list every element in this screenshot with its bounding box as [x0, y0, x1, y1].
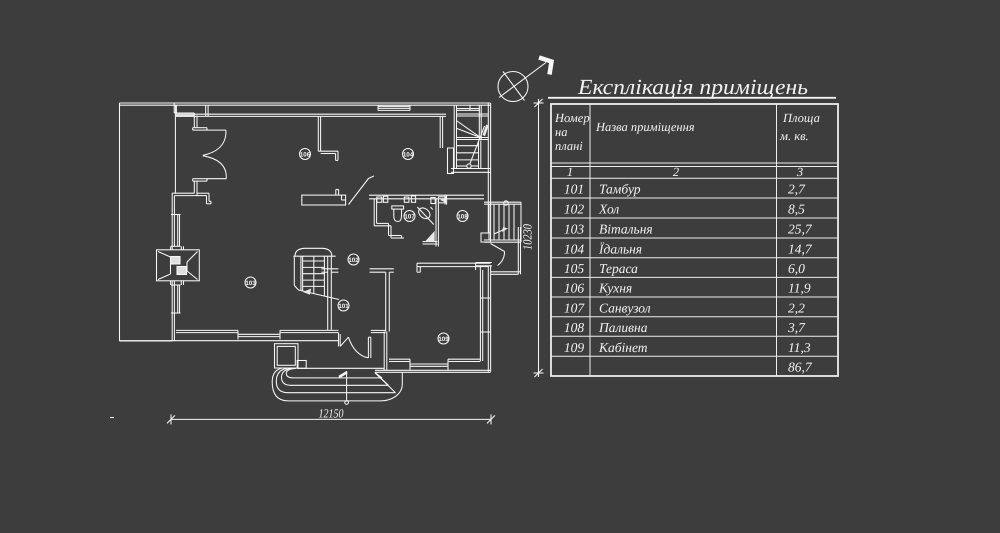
svg-text:106: 106	[564, 281, 585, 296]
svg-text:плані: плані	[555, 139, 583, 153]
svg-text:1: 1	[567, 165, 573, 179]
svg-text:102: 102	[348, 257, 359, 264]
svg-text:на: на	[555, 125, 567, 139]
svg-text:6,0: 6,0	[788, 261, 805, 276]
svg-text:2,7: 2,7	[788, 182, 806, 197]
svg-text:109: 109	[564, 340, 585, 355]
svg-text:105: 105	[564, 261, 585, 276]
svg-text:11,9: 11,9	[788, 281, 811, 296]
svg-text:106: 106	[300, 151, 311, 158]
svg-text:14,7: 14,7	[788, 241, 813, 256]
svg-text:Площа: Площа	[782, 111, 820, 125]
svg-text:м. кв.: м. кв.	[779, 129, 809, 143]
svg-text:Хол: Хол	[598, 202, 619, 217]
svg-text:Експлікація приміщень: Експлікація приміщень	[577, 75, 808, 99]
svg-text:102: 102	[564, 202, 585, 217]
svg-text:Їдальня: Їдальня	[598, 241, 642, 256]
svg-text:107: 107	[564, 300, 586, 315]
svg-text:104: 104	[403, 151, 414, 158]
svg-text:103: 103	[564, 222, 585, 237]
svg-text:103: 103	[245, 280, 256, 287]
svg-text:Кухня: Кухня	[598, 281, 632, 296]
svg-text:86,7: 86,7	[788, 360, 813, 375]
svg-text:Назва приміщення: Назва приміщення	[595, 120, 695, 134]
svg-text:10230: 10230	[521, 223, 535, 250]
svg-text:Санвузол: Санвузол	[599, 300, 651, 315]
svg-text:104: 104	[564, 241, 585, 256]
svg-text:109: 109	[438, 336, 449, 343]
svg-text:101: 101	[338, 303, 349, 310]
svg-text:12150: 12150	[319, 406, 345, 420]
svg-text:25,7: 25,7	[788, 222, 813, 237]
svg-text:Номер: Номер	[554, 111, 590, 125]
svg-text:2: 2	[673, 165, 679, 179]
svg-text:108: 108	[564, 320, 585, 335]
svg-text:101: 101	[564, 182, 584, 197]
svg-text:3: 3	[796, 165, 803, 179]
svg-text:11,3: 11,3	[788, 340, 811, 355]
svg-text:Тераса: Тераса	[599, 261, 638, 276]
svg-text:Кабінет: Кабінет	[598, 340, 648, 355]
svg-text:Вітальня: Вітальня	[599, 222, 653, 237]
svg-text:8,5: 8,5	[788, 202, 805, 217]
svg-text:2,2: 2,2	[788, 300, 805, 315]
svg-text:Паливна: Паливна	[598, 320, 648, 335]
svg-text:108: 108	[457, 213, 468, 220]
svg-text:Тамбур: Тамбур	[599, 182, 641, 197]
svg-text:3,7: 3,7	[787, 320, 806, 335]
svg-text:107: 107	[404, 213, 415, 220]
